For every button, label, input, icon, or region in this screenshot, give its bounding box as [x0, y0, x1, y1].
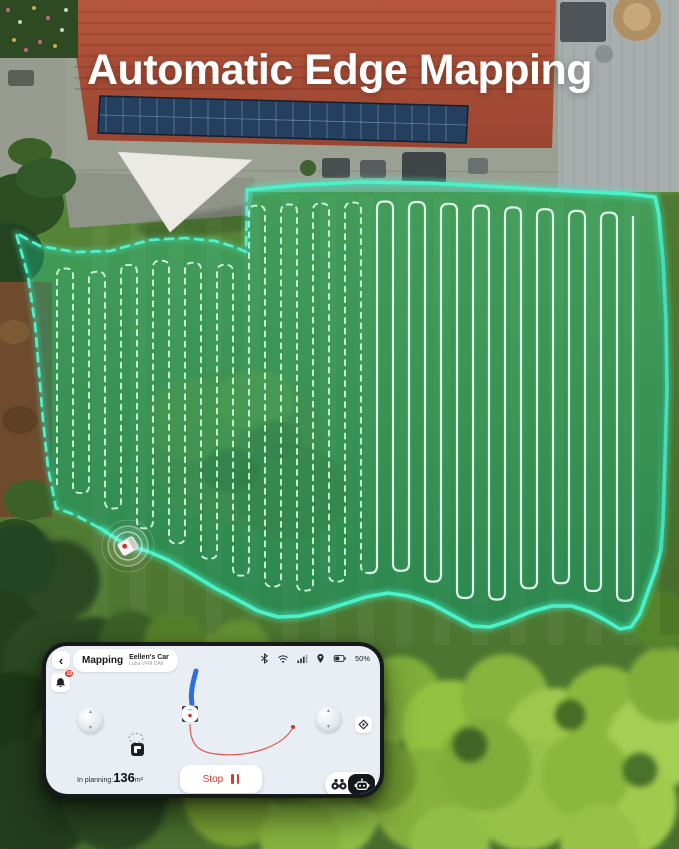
planning-value: 136: [113, 770, 135, 785]
view-switcher: [325, 772, 377, 794]
dock-icon: [131, 743, 144, 756]
page-title: Automatic Edge Mapping: [0, 46, 679, 95]
locate-button[interactable]: [355, 716, 372, 733]
planning-area-readout: In planning: 136 m²: [77, 770, 143, 785]
joystick-down-icon: ▼: [88, 726, 93, 731]
dock-zone-ellipse: [129, 734, 143, 743]
joystick-up-icon: ▲: [326, 709, 331, 714]
joystick-up-icon: ▲: [88, 710, 93, 715]
pause-icon: [231, 774, 239, 784]
marketing-image: Automatic Edge Mapping ‹ Mapping Eellen'…: [0, 0, 679, 849]
stop-button[interactable]: Stop: [180, 765, 262, 793]
planned-path-blue: [191, 671, 196, 704]
phone-mockup: ‹ Mapping Eellen's Car Luba-VFM DA6 19: [42, 642, 384, 798]
deck-panel: [560, 2, 606, 42]
binoculars-icon[interactable]: [330, 778, 348, 791]
locate-icon: [358, 719, 369, 730]
traced-path-red: [190, 724, 292, 755]
path-endpoint-dot: [291, 725, 295, 729]
planning-unit: m²: [135, 777, 143, 784]
stop-label: Stop: [203, 774, 224, 785]
robot-mower-marker: [102, 520, 154, 572]
right-joystick[interactable]: ▲ ▼: [315, 706, 342, 733]
app-screen: ‹ Mapping Eellen's Car Luba-VFM DA6 19: [46, 646, 380, 794]
left-joystick[interactable]: ▲ ▼: [77, 707, 104, 734]
planning-label: In planning:: [77, 777, 113, 784]
joystick-down-icon: ▼: [326, 725, 331, 730]
robot-view-icon: [354, 778, 370, 791]
robot-view-button[interactable]: [348, 774, 375, 794]
robot-map-marker: [182, 706, 199, 723]
